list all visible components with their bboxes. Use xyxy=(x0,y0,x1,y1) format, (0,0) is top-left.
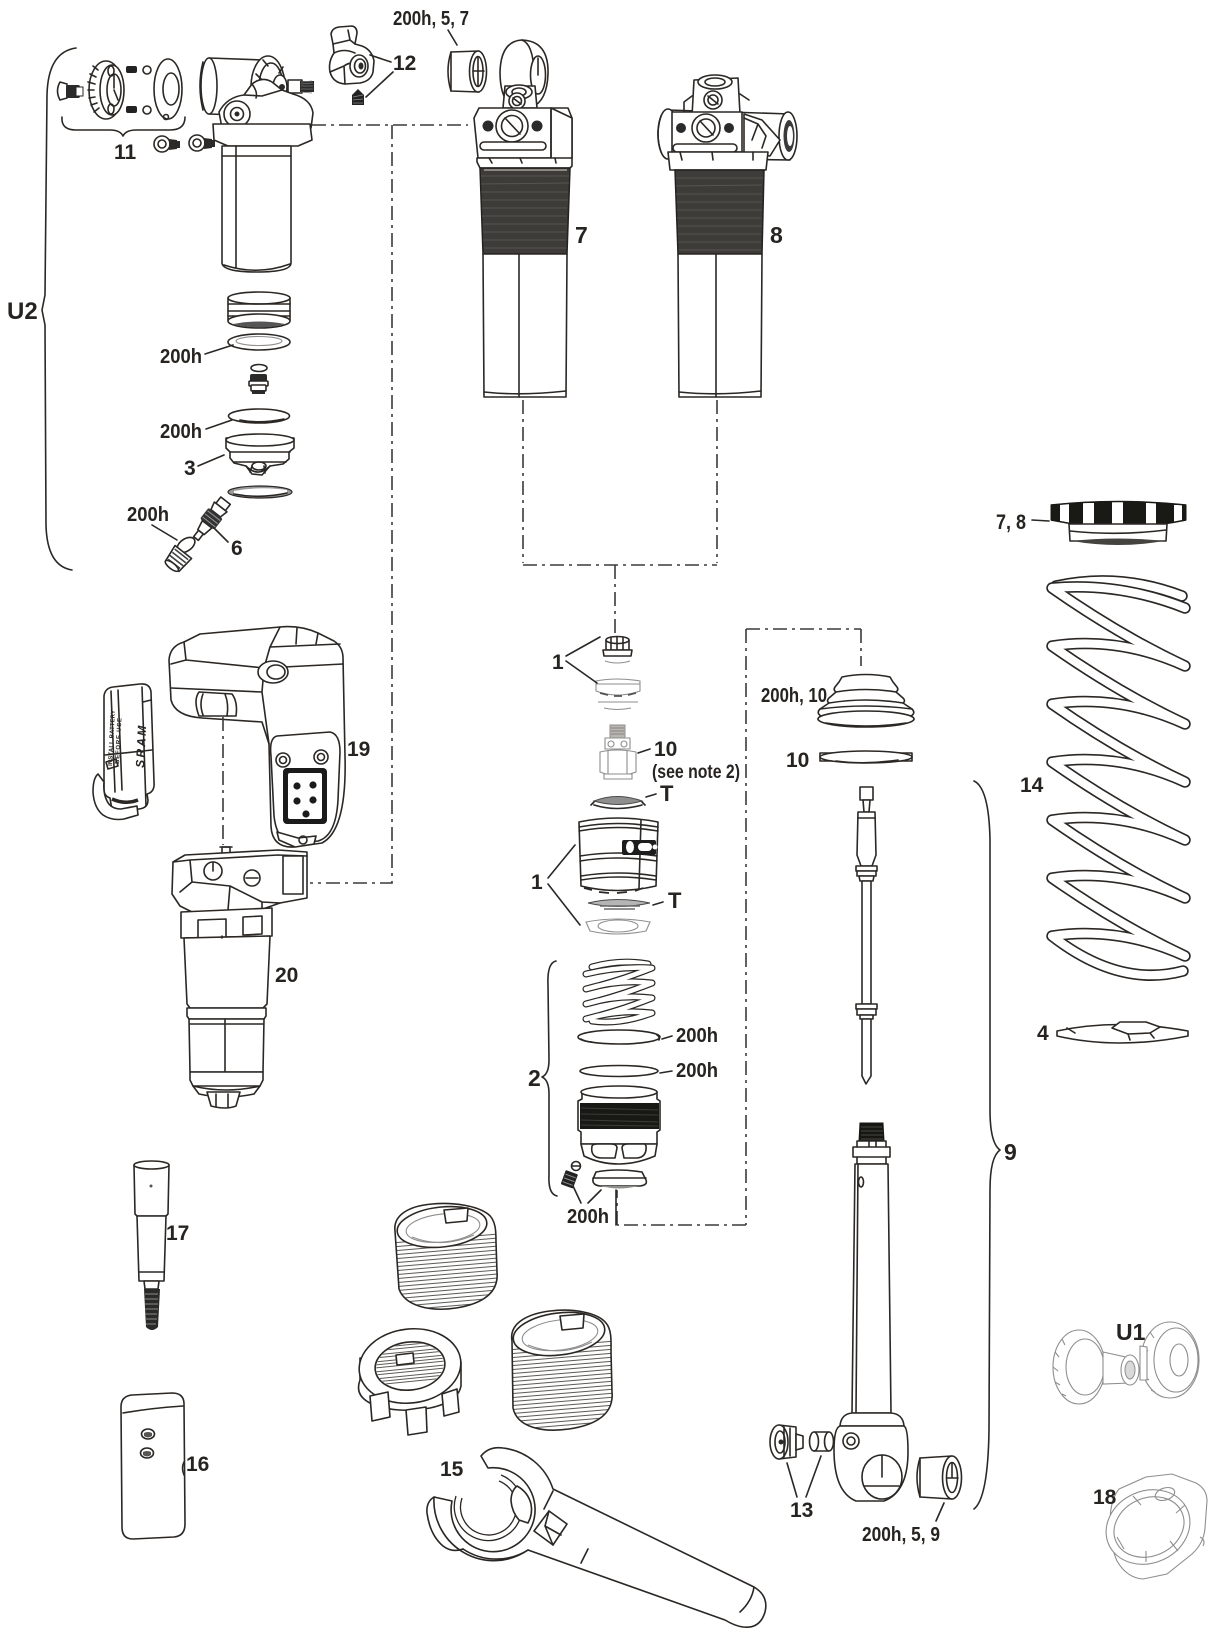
svg-text:13: 13 xyxy=(790,1499,813,1522)
svg-text:10: 10 xyxy=(654,738,677,761)
svg-text:(see note 2): (see note 2) xyxy=(652,762,740,783)
svg-text:200h: 200h xyxy=(676,1060,718,1082)
svg-text:16: 16 xyxy=(186,1453,209,1476)
svg-text:200h: 200h xyxy=(127,504,169,526)
svg-text:200h: 200h xyxy=(567,1206,609,1228)
svg-text:6: 6 xyxy=(231,537,243,560)
svg-text:3: 3 xyxy=(184,457,196,480)
svg-text:4: 4 xyxy=(1037,1022,1049,1045)
svg-text:17: 17 xyxy=(166,1222,189,1245)
svg-text:T: T xyxy=(660,781,674,806)
svg-text:1: 1 xyxy=(552,651,564,674)
svg-text:SRAM: SRAM xyxy=(133,724,149,768)
svg-text:20: 20 xyxy=(275,964,298,987)
svg-text:19: 19 xyxy=(347,738,370,761)
svg-text:11: 11 xyxy=(114,141,137,164)
svg-text:2: 2 xyxy=(528,1065,541,1091)
svg-text:200h: 200h xyxy=(160,421,202,443)
svg-text:12: 12 xyxy=(393,52,416,75)
svg-text:7: 7 xyxy=(575,222,588,248)
svg-text:18: 18 xyxy=(1093,1486,1117,1509)
svg-text:U1: U1 xyxy=(1116,1319,1146,1345)
svg-text:200h, 5, 7: 200h, 5, 7 xyxy=(393,8,469,30)
svg-text:9: 9 xyxy=(1004,1139,1017,1165)
svg-text:8: 8 xyxy=(770,222,783,248)
svg-text:200h: 200h xyxy=(676,1025,718,1047)
svg-text:14: 14 xyxy=(1020,774,1044,797)
svg-text:10: 10 xyxy=(786,749,809,772)
svg-text:1: 1 xyxy=(531,871,543,894)
svg-text:200h, 5, 9: 200h, 5, 9 xyxy=(862,1524,940,1546)
svg-text:200h, 10: 200h, 10 xyxy=(761,685,827,707)
svg-text:200h: 200h xyxy=(160,346,202,368)
svg-text:15: 15 xyxy=(440,1458,464,1481)
svg-text:U2: U2 xyxy=(7,298,38,325)
svg-text:7, 8: 7, 8 xyxy=(996,511,1026,534)
svg-text:T: T xyxy=(668,888,682,913)
